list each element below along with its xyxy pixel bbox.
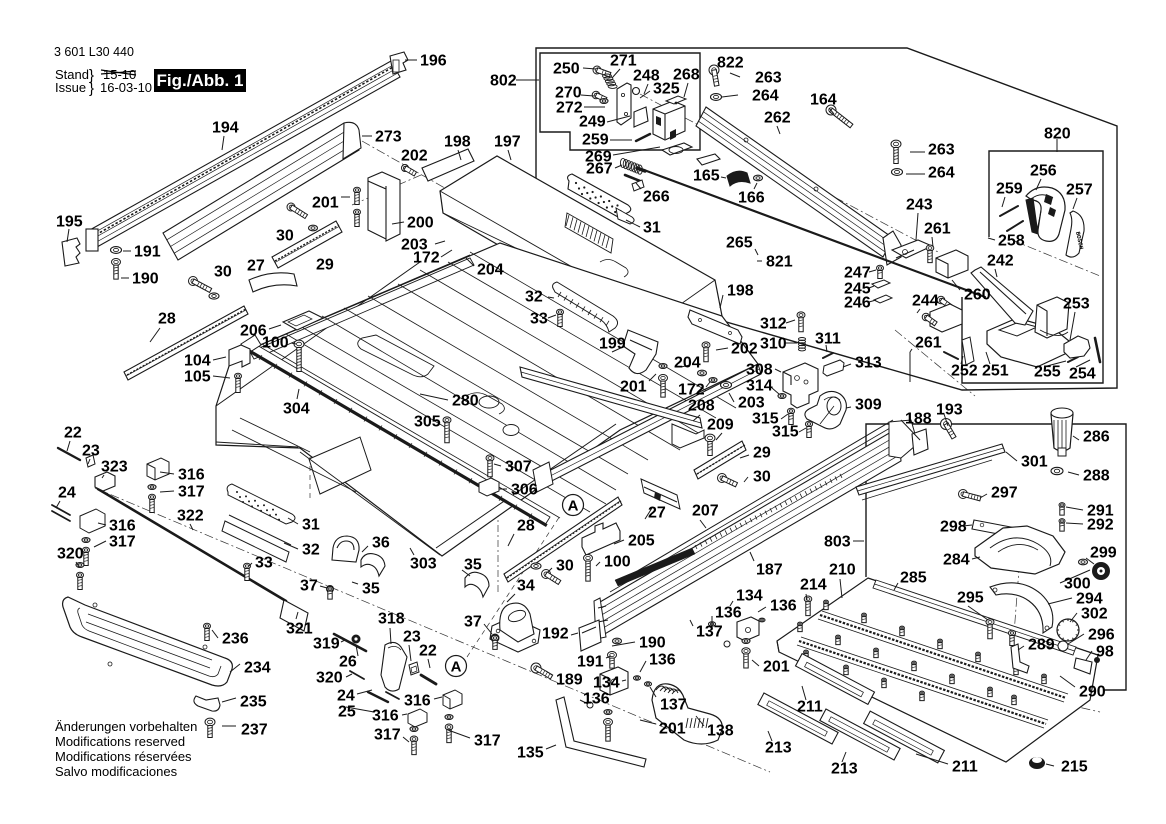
svg-text:316: 316 (404, 693, 431, 710)
svg-text:34: 34 (517, 578, 535, 595)
svg-text:201: 201 (620, 379, 647, 396)
svg-text:25: 25 (338, 704, 356, 721)
svg-text:280: 280 (452, 393, 479, 410)
svg-text:273: 273 (375, 129, 402, 146)
svg-text:Issue: Issue (55, 80, 86, 95)
svg-text:134: 134 (736, 588, 763, 605)
svg-text:172: 172 (678, 382, 705, 399)
svg-text:198: 198 (727, 283, 754, 300)
svg-text:321: 321 (286, 621, 313, 638)
svg-text:27: 27 (648, 505, 666, 522)
svg-text:256: 256 (1030, 163, 1057, 180)
svg-text:22: 22 (419, 643, 437, 660)
svg-text:306: 306 (511, 482, 538, 499)
svg-text:261: 261 (924, 221, 951, 238)
svg-text:211: 211 (952, 759, 978, 776)
svg-text:32: 32 (525, 289, 543, 306)
svg-text:820: 820 (1044, 126, 1071, 143)
svg-text:264: 264 (752, 88, 779, 105)
svg-text:209: 209 (707, 417, 734, 434)
svg-text:136: 136 (583, 691, 610, 708)
svg-text:290: 290 (1079, 684, 1106, 701)
svg-text:213: 213 (765, 740, 792, 757)
svg-text:A: A (568, 498, 579, 515)
svg-text:36: 36 (372, 535, 390, 552)
svg-text:197: 197 (494, 134, 521, 151)
svg-text:255: 255 (1034, 364, 1061, 381)
svg-text:316: 316 (109, 518, 136, 535)
svg-text:30: 30 (276, 228, 294, 245)
svg-text:303: 303 (410, 556, 437, 573)
svg-text:822: 822 (717, 55, 744, 72)
svg-text:187: 187 (756, 562, 783, 579)
svg-text:317: 317 (374, 727, 401, 744)
svg-text:207: 207 (692, 503, 719, 520)
svg-text:296: 296 (1088, 627, 1115, 644)
svg-text:137: 137 (660, 697, 687, 714)
svg-text:Modifications reserved: Modifications reserved (55, 734, 185, 749)
svg-text:24: 24 (337, 688, 355, 705)
svg-text:235: 235 (240, 694, 267, 711)
svg-text:137: 137 (696, 624, 723, 641)
svg-text:22: 22 (64, 425, 82, 442)
svg-text:190: 190 (132, 271, 159, 288)
svg-text:16-03-10: 16-03-10 (100, 80, 152, 95)
svg-text:307: 307 (505, 459, 532, 476)
svg-text:246: 246 (844, 295, 871, 312)
svg-text:311: 311 (815, 331, 841, 348)
svg-text:236: 236 (222, 631, 249, 648)
svg-text:135: 135 (517, 745, 544, 762)
svg-text:243: 243 (906, 197, 933, 214)
svg-text:320: 320 (316, 670, 343, 687)
svg-text:166: 166 (738, 190, 765, 207)
svg-text:314: 314 (746, 378, 773, 395)
svg-text:26: 26 (339, 654, 357, 671)
svg-text:213: 213 (831, 761, 858, 778)
svg-text:297: 297 (991, 485, 1018, 502)
svg-text:172: 172 (413, 250, 440, 267)
svg-text:251: 251 (982, 363, 1009, 380)
svg-text:316: 316 (178, 467, 205, 484)
svg-text:29: 29 (316, 257, 334, 274)
svg-text:323: 323 (101, 459, 128, 476)
svg-text:35: 35 (362, 581, 380, 598)
svg-text:295: 295 (957, 590, 984, 607)
svg-text:33: 33 (255, 555, 273, 572)
svg-text:191: 191 (134, 244, 161, 261)
svg-text:37: 37 (300, 578, 318, 595)
svg-text:322: 322 (177, 508, 204, 525)
svg-text:253: 253 (1063, 296, 1090, 313)
svg-text:320: 320 (57, 546, 84, 563)
svg-text:310: 310 (760, 336, 787, 353)
svg-text:37: 37 (464, 614, 482, 631)
svg-text:292: 292 (1087, 517, 1114, 534)
svg-text:250: 250 (553, 61, 580, 78)
svg-text:201: 201 (659, 721, 686, 738)
svg-text:317: 317 (178, 484, 205, 501)
svg-text:265: 265 (726, 235, 753, 252)
svg-text:260: 260 (964, 287, 991, 304)
svg-text:299: 299 (1090, 545, 1117, 562)
svg-text:Modifications réservées: Modifications réservées (55, 749, 192, 764)
svg-text:193: 193 (936, 402, 963, 419)
svg-text:28: 28 (517, 518, 535, 535)
svg-text:284: 284 (943, 552, 970, 569)
svg-text:300: 300 (1064, 576, 1091, 593)
svg-text:3 601 L30 440: 3 601 L30 440 (54, 45, 134, 59)
svg-text:316: 316 (372, 708, 399, 725)
svg-text:312: 312 (760, 316, 787, 333)
svg-text:288: 288 (1083, 468, 1110, 485)
svg-text:28: 28 (158, 311, 176, 328)
svg-text:252: 252 (951, 363, 978, 380)
svg-text:263: 263 (755, 70, 782, 87)
svg-text:313: 313 (855, 355, 882, 372)
svg-text:29: 29 (753, 445, 771, 462)
svg-text:305: 305 (414, 414, 441, 431)
svg-text:247: 247 (844, 265, 871, 282)
svg-text:298: 298 (940, 519, 967, 536)
svg-text:35: 35 (464, 557, 482, 574)
svg-text:104: 104 (184, 353, 211, 370)
svg-text:234: 234 (244, 660, 271, 677)
svg-text:199: 199 (599, 336, 626, 353)
svg-text:136: 136 (715, 605, 742, 622)
svg-text:205: 205 (628, 533, 655, 550)
svg-text:264: 264 (928, 165, 955, 182)
svg-text:254: 254 (1069, 366, 1096, 383)
svg-text:24: 24 (58, 485, 76, 502)
svg-text:165: 165 (693, 168, 720, 185)
svg-text:202: 202 (401, 148, 428, 165)
svg-text:98: 98 (1096, 644, 1114, 661)
svg-text:802: 802 (490, 73, 517, 90)
svg-text:204: 204 (674, 355, 701, 372)
svg-text:194: 194 (212, 120, 239, 137)
svg-text:249: 249 (579, 114, 606, 131)
svg-text:318: 318 (378, 611, 405, 628)
svg-text:317: 317 (474, 733, 501, 750)
svg-text:192: 192 (542, 626, 569, 643)
svg-text:195: 195 (56, 214, 83, 231)
svg-text:202: 202 (731, 341, 758, 358)
svg-text:203: 203 (738, 395, 765, 412)
svg-text:204: 204 (477, 262, 504, 279)
svg-text:821: 821 (766, 254, 793, 271)
svg-text:100: 100 (262, 335, 289, 352)
svg-text:}: } (89, 80, 94, 97)
svg-text:304: 304 (283, 401, 310, 418)
svg-text:32: 32 (302, 542, 320, 559)
svg-text:215: 215 (1061, 759, 1088, 776)
svg-text:325: 325 (653, 81, 680, 98)
svg-text:319: 319 (313, 636, 340, 653)
svg-text:242: 242 (987, 253, 1014, 270)
svg-text:198: 198 (444, 134, 471, 151)
svg-text:164: 164 (810, 92, 837, 109)
svg-text:258: 258 (998, 233, 1025, 250)
svg-text:31: 31 (302, 517, 320, 534)
svg-text:302: 302 (1081, 606, 1108, 623)
svg-text:286: 286 (1083, 429, 1110, 446)
svg-text:27: 27 (247, 258, 265, 275)
svg-text:214: 214 (800, 577, 827, 594)
svg-text:259: 259 (582, 132, 609, 149)
svg-text:Salvo modificaciones: Salvo modificaciones (55, 764, 178, 779)
svg-text:201: 201 (312, 195, 339, 212)
svg-text:263: 263 (928, 142, 955, 159)
svg-text:A: A (451, 659, 462, 676)
svg-text:23: 23 (82, 443, 100, 460)
svg-text:315: 315 (772, 424, 799, 441)
svg-text:136: 136 (649, 652, 676, 669)
svg-text:30: 30 (753, 469, 771, 486)
svg-text:30: 30 (556, 558, 574, 575)
svg-text:285: 285 (900, 570, 927, 587)
svg-text:Fig./Abb. 1: Fig./Abb. 1 (157, 71, 244, 90)
svg-text:196: 196 (420, 53, 447, 70)
svg-text:134: 134 (593, 675, 620, 692)
svg-text:301: 301 (1021, 454, 1048, 471)
svg-text:136: 136 (770, 598, 797, 615)
svg-text:210: 210 (829, 562, 856, 579)
svg-text:261: 261 (915, 335, 942, 352)
svg-text:33: 33 (530, 311, 548, 328)
svg-text:105: 105 (184, 369, 211, 386)
svg-text:189: 189 (556, 672, 583, 689)
svg-text:190: 190 (639, 635, 666, 652)
svg-text:200: 200 (407, 215, 434, 232)
svg-text:257: 257 (1066, 182, 1093, 199)
svg-text:100: 100 (604, 554, 631, 571)
svg-text:211: 211 (797, 699, 823, 716)
svg-text:188: 188 (905, 411, 932, 428)
svg-text:266: 266 (643, 189, 670, 206)
svg-text:308: 308 (746, 362, 773, 379)
svg-text:244: 244 (912, 293, 939, 310)
svg-text:201: 201 (763, 659, 790, 676)
svg-text:259: 259 (996, 181, 1023, 198)
svg-text:289: 289 (1028, 637, 1055, 654)
svg-text:31: 31 (643, 220, 661, 237)
svg-text:Änderungen vorbehalten: Änderungen vorbehalten (55, 719, 197, 734)
svg-text:317: 317 (109, 534, 136, 551)
svg-text:208: 208 (688, 398, 715, 415)
svg-text:30: 30 (214, 264, 232, 281)
svg-text:262: 262 (764, 110, 791, 127)
svg-text:191: 191 (577, 654, 604, 671)
svg-text:267: 267 (586, 161, 613, 178)
svg-text:138: 138 (707, 723, 734, 740)
svg-text:309: 309 (855, 397, 882, 414)
svg-text:803: 803 (824, 534, 851, 551)
svg-text:237: 237 (241, 722, 268, 739)
